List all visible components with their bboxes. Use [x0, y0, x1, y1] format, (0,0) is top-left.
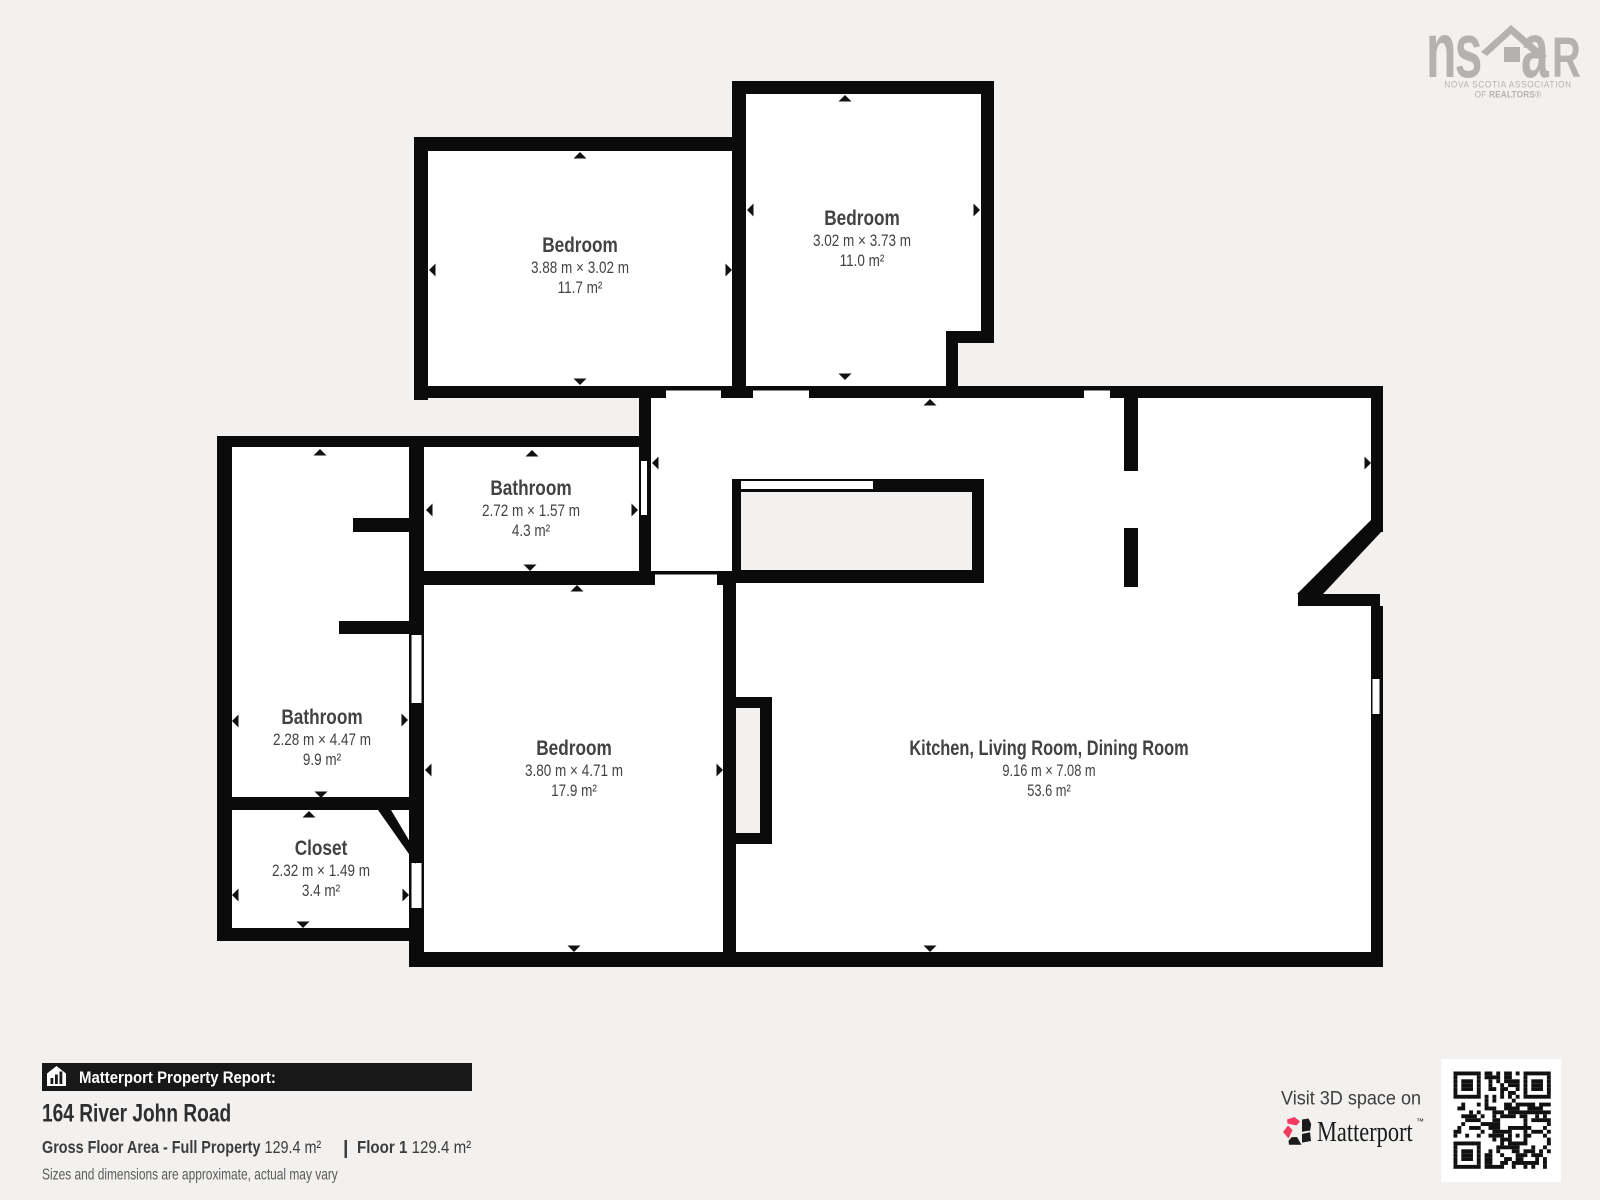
svg-text:9.16 m × 7.08 m: 9.16 m × 7.08 m — [1002, 763, 1095, 781]
svg-text:Bathroom: Bathroom — [490, 478, 571, 501]
svg-text:Sizes and dimensions are appro: Sizes and dimensions are approximate, ac… — [42, 1165, 338, 1183]
svg-text:11.0 m²: 11.0 m² — [840, 252, 885, 271]
svg-text:OF REALTORS®: OF REALTORS® — [1475, 89, 1542, 99]
svg-text:53.6 m²: 53.6 m² — [1027, 783, 1071, 801]
svg-text:9.9 m²: 9.9 m² — [303, 751, 341, 770]
svg-text:2.32 m × 1.49 m: 2.32 m × 1.49 m — [272, 862, 370, 881]
svg-text:Visit 3D space on: Visit 3D space on — [1281, 1087, 1421, 1109]
svg-text:2.28 m × 4.47 m: 2.28 m × 4.47 m — [273, 731, 371, 750]
svg-text:Gross Floor Area - Full Proper: Gross Floor Area - Full Property 129.4 m… — [42, 1138, 322, 1158]
svg-text:Matterport Property Report:: Matterport Property Report: — [79, 1069, 276, 1087]
svg-text:164 River John Road: 164 River John Road — [42, 1099, 231, 1127]
svg-text:Closet: Closet — [295, 838, 348, 861]
svg-text:Bedroom: Bedroom — [536, 738, 612, 761]
svg-text:™: ™ — [1416, 1117, 1424, 1126]
svg-text:NOVA SCOTIA ASSOCIATION: NOVA SCOTIA ASSOCIATION — [1444, 79, 1571, 89]
svg-text:2.72 m × 1.57 m: 2.72 m × 1.57 m — [482, 502, 580, 521]
svg-text:3.4 m²: 3.4 m² — [302, 882, 340, 901]
svg-text:11.7 m²: 11.7 m² — [558, 279, 603, 298]
svg-text:Bathroom: Bathroom — [281, 707, 362, 730]
svg-text:Bedroom: Bedroom — [542, 235, 618, 258]
svg-text:Floor 1 129.4 m²: Floor 1 129.4 m² — [357, 1137, 472, 1158]
svg-text:3.88 m × 3.02 m: 3.88 m × 3.02 m — [531, 259, 629, 278]
svg-text:Matterport: Matterport — [1317, 1117, 1413, 1148]
svg-text:17.9 m²: 17.9 m² — [551, 782, 597, 801]
svg-text:Kitchen, Living Room, Dining R: Kitchen, Living Room, Dining Room — [909, 736, 1188, 759]
svg-text:3.80 m × 4.71 m: 3.80 m × 4.71 m — [525, 762, 623, 781]
svg-text:Bedroom: Bedroom — [824, 208, 900, 231]
svg-text:4.3 m²: 4.3 m² — [512, 522, 550, 541]
svg-text:3.02 m × 3.73 m: 3.02 m × 3.73 m — [813, 232, 911, 251]
